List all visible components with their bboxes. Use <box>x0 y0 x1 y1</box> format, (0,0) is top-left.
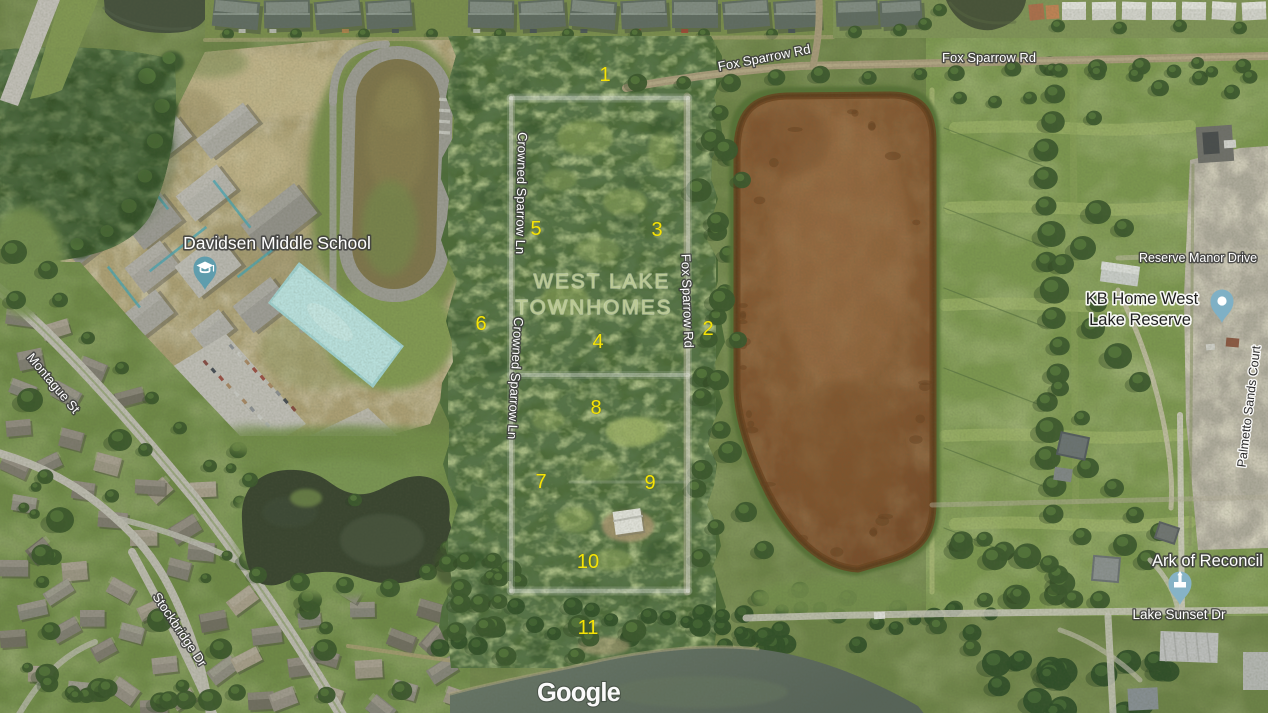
svg-text:KB Home West: KB Home West <box>1086 290 1199 308</box>
svg-text:11: 11 <box>578 617 599 639</box>
svg-text:3: 3 <box>651 219 662 241</box>
svg-text:Davidsen Middle School: Davidsen Middle School <box>183 233 371 253</box>
svg-text:5: 5 <box>530 218 541 240</box>
svg-text:2: 2 <box>702 318 713 340</box>
svg-text:8: 8 <box>590 397 601 419</box>
svg-text:Google: Google <box>537 679 621 707</box>
svg-text:9: 9 <box>644 472 655 494</box>
svg-text:Lake Reserve: Lake Reserve <box>1089 311 1191 329</box>
svg-text:Lake Sunset Dr: Lake Sunset Dr <box>1132 607 1226 622</box>
svg-text:6: 6 <box>475 313 486 335</box>
svg-text:10: 10 <box>577 551 599 573</box>
svg-text:4: 4 <box>592 331 603 353</box>
svg-text:WEST LAKE: WEST LAKE <box>534 270 671 293</box>
svg-text:Reserve Manor Drive: Reserve Manor Drive <box>1139 251 1257 265</box>
svg-text:Fox Sparrow Rd: Fox Sparrow Rd <box>942 50 1036 65</box>
svg-text:7: 7 <box>535 471 546 493</box>
svg-text:1: 1 <box>599 64 610 86</box>
svg-text:Crowned Sparrow Ln: Crowned Sparrow Ln <box>513 132 530 254</box>
svg-text:TOWNHOMES: TOWNHOMES <box>515 296 672 319</box>
svg-text:Ark of Reconcil: Ark of Reconcil <box>1152 552 1263 570</box>
